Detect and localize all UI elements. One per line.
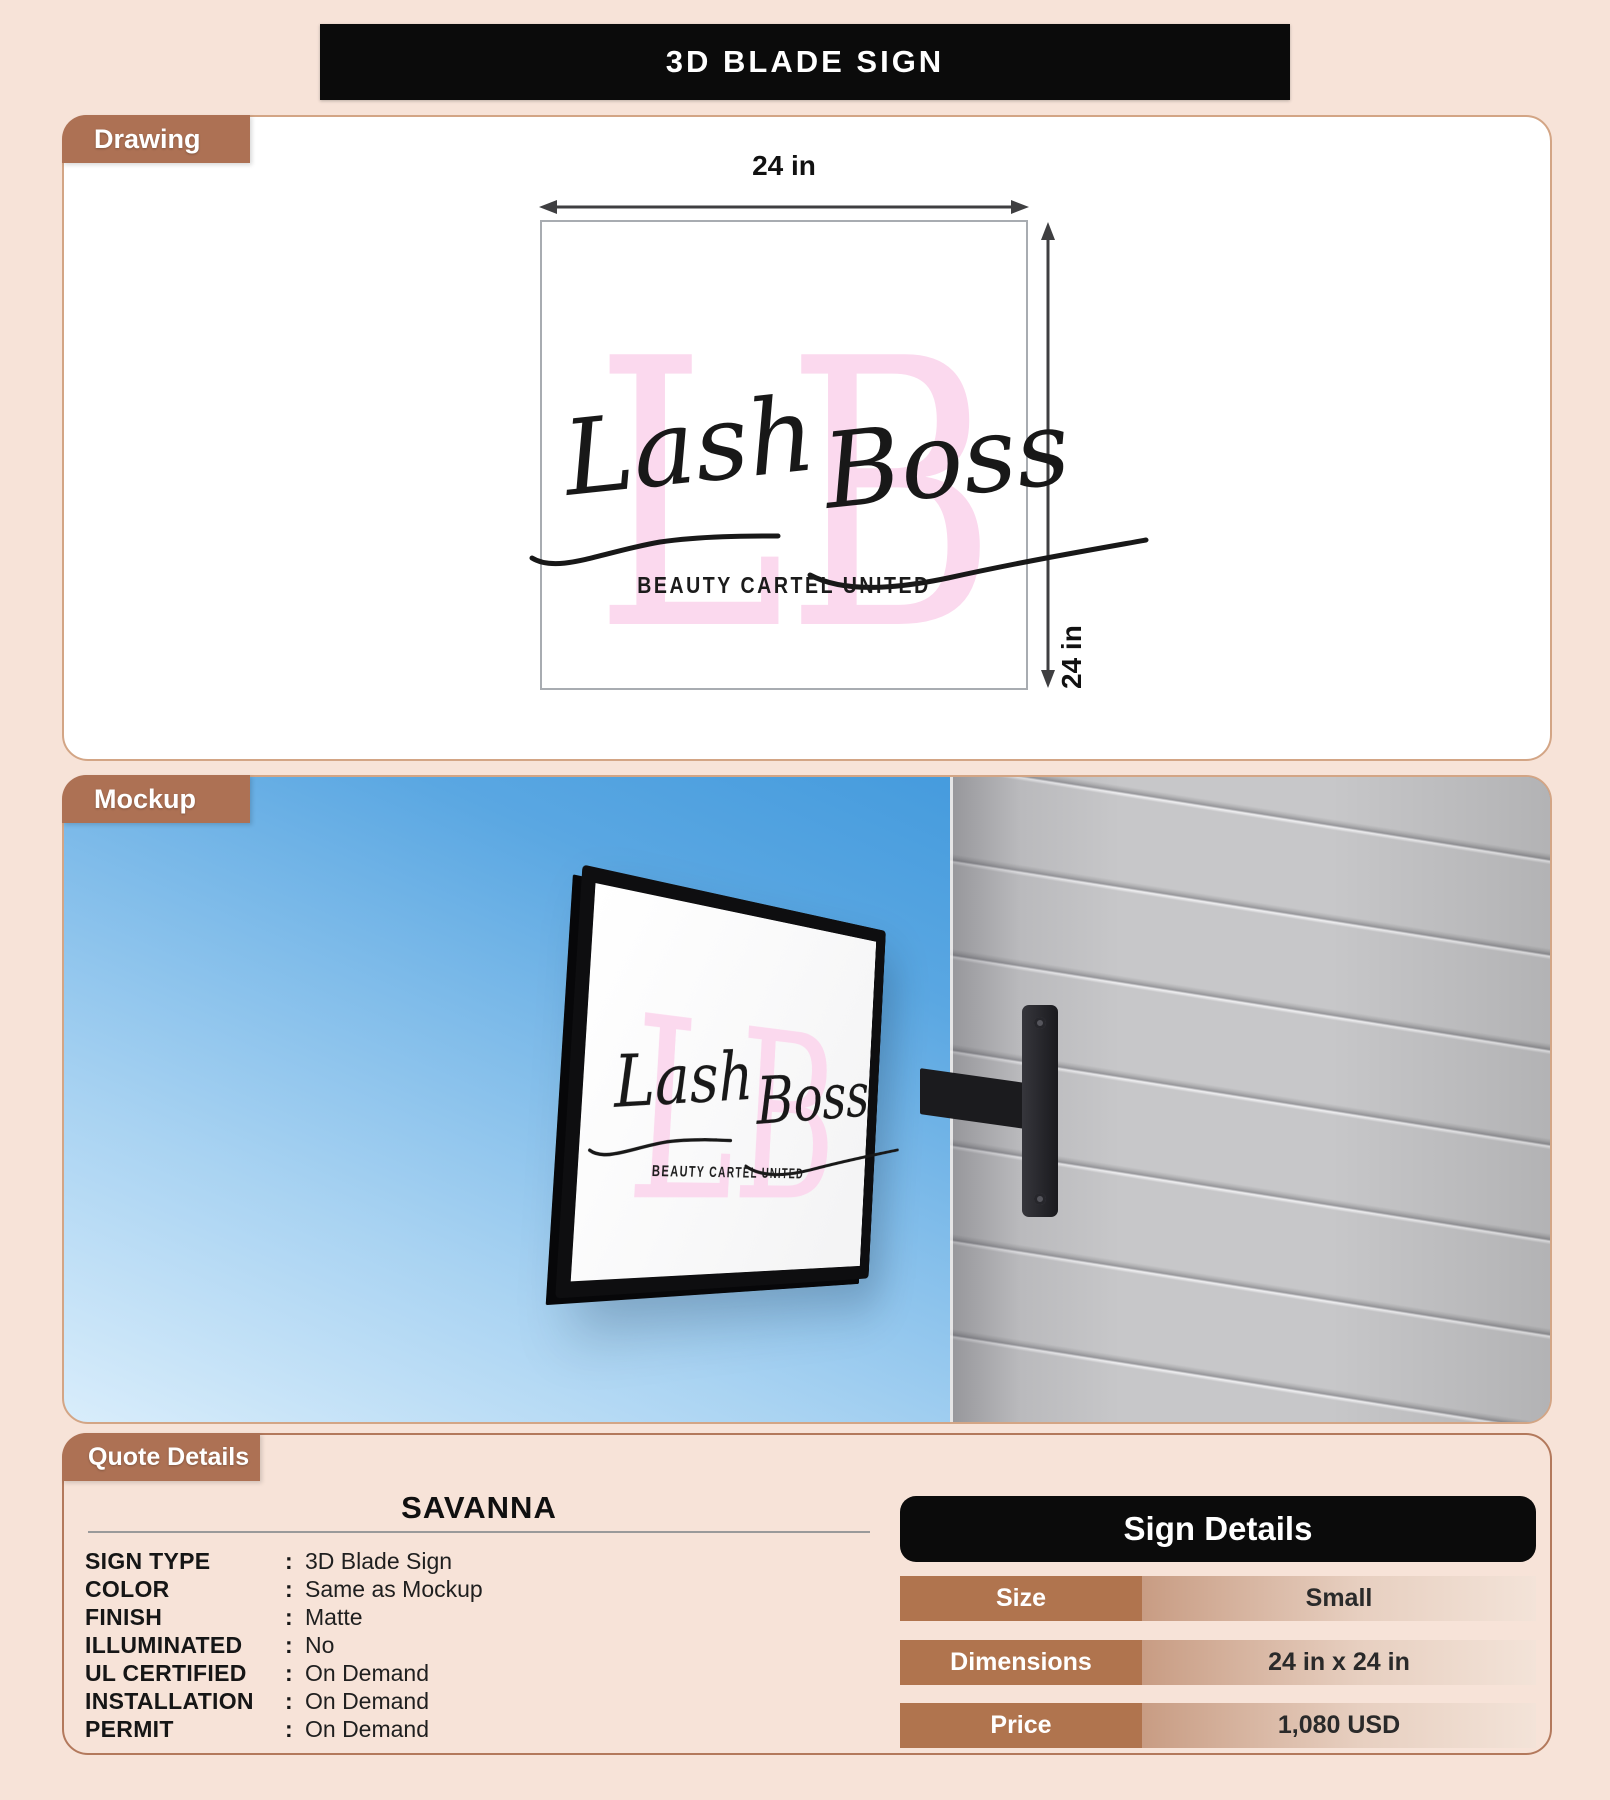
quote-field-row: INSTALLATION : On Demand <box>85 1687 785 1715</box>
row-value: Small <box>1142 1576 1536 1621</box>
field-label: INSTALLATION <box>85 1688 285 1715</box>
field-value: On Demand <box>305 1688 429 1715</box>
field-value: On Demand <box>305 1660 429 1687</box>
blade-sign-face: LB Lash Boss BEAUTY CARTEL UNITED <box>571 883 876 1281</box>
field-colon: : <box>285 1688 305 1715</box>
field-colon: : <box>285 1604 305 1631</box>
drawing-tab-label: Drawing <box>94 124 201 155</box>
quote-field-row: PERMIT : On Demand <box>85 1715 785 1743</box>
width-dimension-arrow <box>538 196 1030 218</box>
field-label: FINISH <box>85 1604 285 1631</box>
row-label: Price <box>900 1703 1142 1748</box>
quote-details-tab: Quote Details <box>62 1433 260 1481</box>
quote-field-row: COLOR : Same as Mockup <box>85 1575 785 1603</box>
sign-details-row-price: Price 1,080 USD <box>900 1703 1536 1748</box>
logo-signature-script: Lash Boss <box>510 300 1150 600</box>
quote-divider <box>88 1531 870 1533</box>
row-value: 1,080 USD <box>1142 1703 1536 1748</box>
sign-bracket-wall-plate <box>1022 1005 1058 1217</box>
field-label: SIGN TYPE <box>85 1548 285 1575</box>
quote-field-row: SIGN TYPE : 3D Blade Sign <box>85 1547 785 1575</box>
logo-tagline: BEAUTY CARTEL UNITED <box>577 572 992 599</box>
quote-field-list: SIGN TYPE : 3D Blade Sign COLOR : Same a… <box>85 1547 785 1743</box>
quote-field-row: FINISH : Matte <box>85 1603 785 1631</box>
field-value: Matte <box>305 1604 363 1631</box>
row-label: Size <box>900 1576 1142 1621</box>
mockup-section-tab: Mockup <box>62 775 250 823</box>
bracket-bolt-bottom <box>1034 1193 1046 1205</box>
field-colon: : <box>285 1632 305 1659</box>
width-dimension-label: 24 in <box>540 150 1028 182</box>
field-colon: : <box>285 1548 305 1575</box>
field-colon: : <box>285 1576 305 1603</box>
mockup-tab-label: Mockup <box>94 784 196 815</box>
logo-flourish-underline-left <box>589 1135 730 1159</box>
quote-name: SAVANNA <box>88 1490 870 1526</box>
blade-sign-mockup: LB Lash Boss BEAUTY CARTEL UNITED <box>555 864 886 1298</box>
quote-field-row: UL CERTIFIED : On Demand <box>85 1659 785 1687</box>
lash-boss-logo-drawing: LB Lash Boss BEAUTY CARTEL UNITED <box>540 220 1028 690</box>
field-label: PERMIT <box>85 1716 285 1743</box>
field-value: No <box>305 1632 334 1659</box>
field-label: UL CERTIFIED <box>85 1660 285 1687</box>
logo-script-first-word: Lash <box>611 1038 754 1124</box>
field-label: ILLUMINATED <box>85 1632 285 1659</box>
field-colon: : <box>285 1660 305 1687</box>
sign-details-row-dimensions: Dimensions 24 in x 24 in <box>900 1640 1536 1685</box>
bracket-bolt-top <box>1034 1017 1046 1029</box>
page-title: 3D BLADE SIGN <box>666 44 944 80</box>
page-title-banner: 3D BLADE SIGN <box>320 24 1290 100</box>
logo-script-second-word: Boss <box>754 1060 870 1140</box>
quote-field-row: ILLUMINATED : No <box>85 1631 785 1659</box>
drawing-section-tab: Drawing <box>62 115 250 163</box>
field-colon: : <box>285 1716 305 1743</box>
quote-tab-label: Quote Details <box>88 1443 249 1472</box>
logo-signature-script: Lash Boss <box>574 966 906 1184</box>
row-value: 24 in x 24 in <box>1142 1640 1536 1685</box>
mockup-section: LB Lash Boss BEAUTY CARTEL UNITED <box>62 775 1552 1424</box>
sign-details-header: Sign Details <box>900 1496 1536 1562</box>
field-value: 3D Blade Sign <box>305 1548 452 1575</box>
logo-script-second-word: Boss <box>816 386 1075 533</box>
logo-flourish-underline-left <box>532 536 778 564</box>
quote-sheet-page: 3D BLADE SIGN Drawing 24 in 24 in LB Las… <box>0 0 1610 1800</box>
lash-boss-logo-mockup: LB Lash Boss BEAUTY CARTEL UNITED <box>589 913 858 1244</box>
field-label: COLOR <box>85 1576 285 1603</box>
field-value: On Demand <box>305 1716 429 1743</box>
row-label: Dimensions <box>900 1640 1142 1685</box>
sign-details-row-size: Size Small <box>900 1576 1536 1621</box>
logo-script-first-word: Lash <box>556 372 821 520</box>
field-value: Same as Mockup <box>305 1576 483 1603</box>
